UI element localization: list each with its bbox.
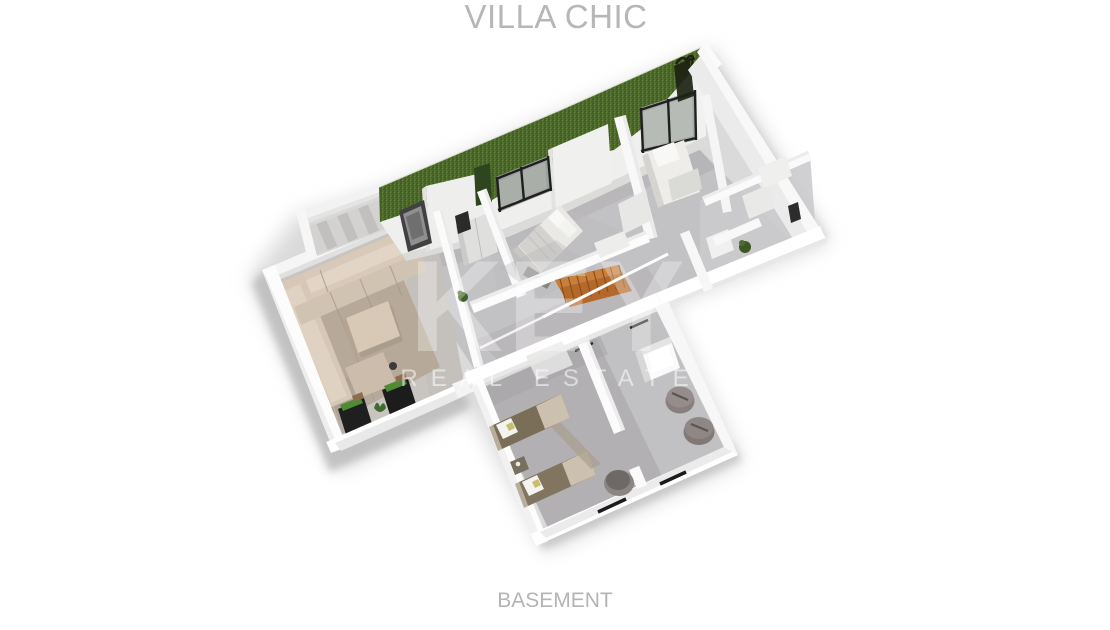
svg-text:BASEMENT: BASEMENT [497, 589, 613, 612]
svg-text:VILLA CHIC: VILLA CHIC [465, 0, 648, 35]
svg-text:REAL ESTATE: REAL ESTATE [400, 365, 701, 392]
svg-text:KEY: KEY [409, 233, 688, 379]
